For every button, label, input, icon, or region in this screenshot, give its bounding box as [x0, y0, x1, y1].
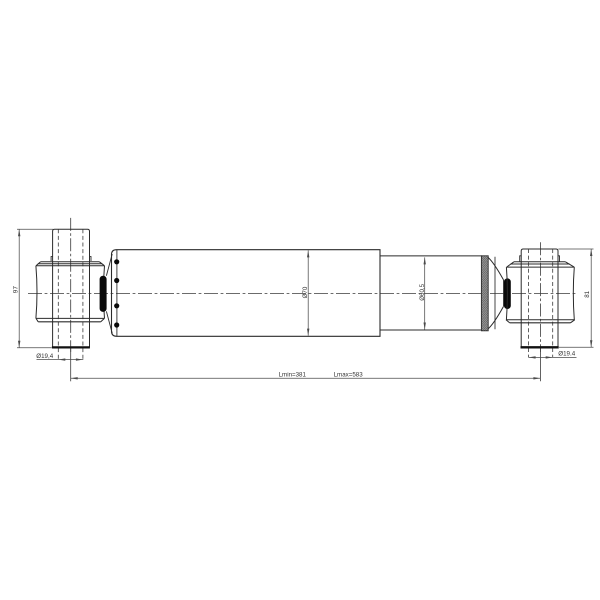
svg-text:97: 97 — [12, 286, 19, 294]
svg-text:Ø19.4: Ø19.4 — [558, 351, 575, 358]
svg-text:81: 81 — [584, 290, 591, 297]
svg-text:Lmax=583: Lmax=583 — [334, 371, 364, 378]
svg-text:Ø60,5: Ø60,5 — [419, 283, 426, 300]
svg-text:Ø19,4: Ø19,4 — [36, 353, 53, 360]
svg-text:Ø70: Ø70 — [302, 286, 309, 298]
svg-text:Lmin=381: Lmin=381 — [279, 371, 307, 378]
